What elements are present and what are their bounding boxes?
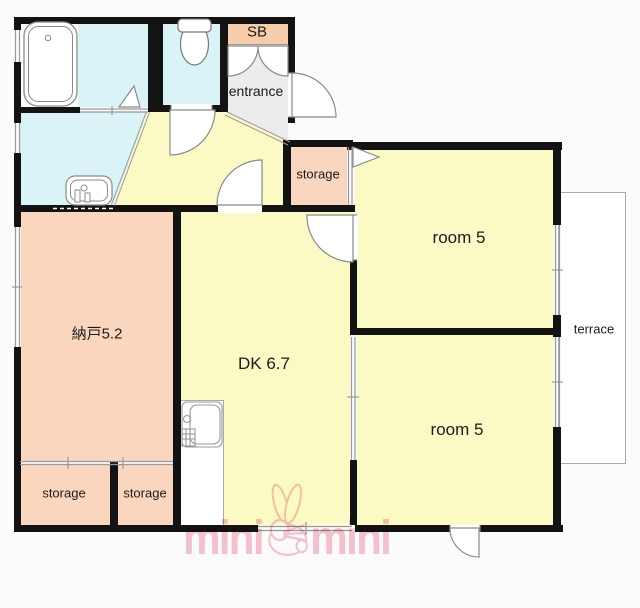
label-room5-top: room 5 xyxy=(433,228,486,248)
wall-segment xyxy=(480,525,563,532)
wall-segment xyxy=(14,347,21,532)
floor-plan: SB entrance storage room 5 terrace 納戸5.2… xyxy=(0,0,640,608)
label-nando: 納戸5.2 xyxy=(72,323,123,344)
wall-segment xyxy=(14,153,21,227)
wall-segment xyxy=(553,142,561,225)
label-storage-bottom-left: storage xyxy=(42,486,85,501)
wall-segment xyxy=(14,17,21,30)
watermark-word-right: mini xyxy=(310,520,390,558)
label-sb: SB xyxy=(247,24,267,41)
label-terrace: terrace xyxy=(574,322,614,337)
wall-segment xyxy=(262,205,283,212)
wall-segment xyxy=(14,205,178,212)
room5-exterior-door-arc xyxy=(450,528,479,557)
wall-segment xyxy=(14,62,21,123)
wall-segment xyxy=(350,328,561,335)
wall-segment xyxy=(110,462,118,525)
wall-segment xyxy=(20,107,80,113)
wall-segment xyxy=(350,260,357,334)
label-storage-top: storage xyxy=(296,167,339,182)
wall-segment xyxy=(220,17,228,112)
label-dk: DK 6.7 xyxy=(238,354,290,374)
label-storage-bottom-right: storage xyxy=(123,486,166,501)
wall-segment xyxy=(178,205,218,212)
label-room5-bottom: room 5 xyxy=(431,420,484,440)
entrance-door-arc xyxy=(292,73,336,117)
wall-segment xyxy=(283,205,355,212)
wall-segment xyxy=(163,105,171,112)
wall-segment xyxy=(347,142,562,150)
wall-segment xyxy=(288,117,295,123)
wall-segment xyxy=(283,140,291,212)
wall-segment xyxy=(173,212,181,525)
watermark-word-left: mini xyxy=(183,520,263,558)
wall-segment xyxy=(212,105,220,112)
label-entrance: entrance xyxy=(229,83,283,99)
rabbit-mascot-icon xyxy=(265,480,307,558)
room-toilet xyxy=(163,24,220,105)
watermark: mini mini xyxy=(183,480,390,558)
wall-segment xyxy=(288,17,295,73)
wall-segment xyxy=(148,17,163,112)
bathtub-area xyxy=(20,24,78,107)
wall-segment xyxy=(553,427,561,530)
wall-segment xyxy=(283,140,353,147)
